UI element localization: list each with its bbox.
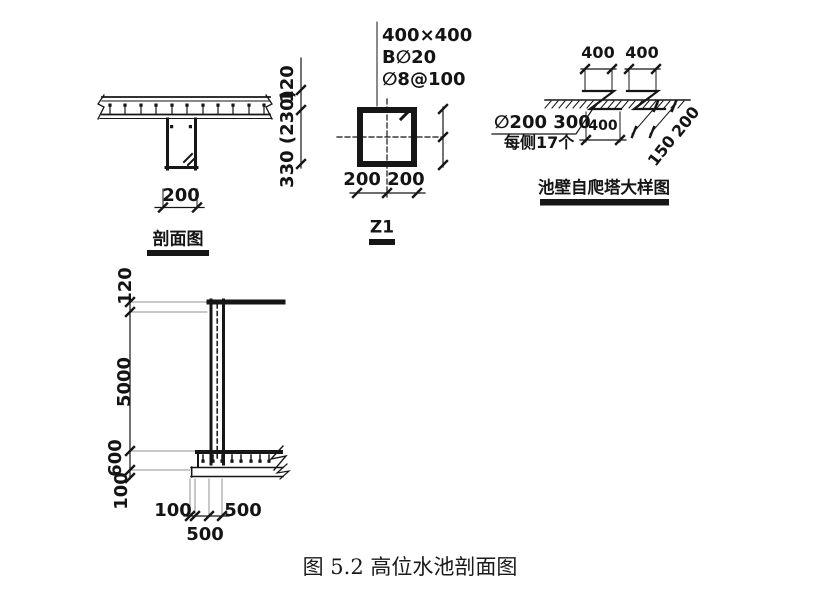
dim-label-500-right: 500 [224,502,262,520]
ladder-title-underline [540,199,669,206]
dim-label-120-wall: 120 [117,267,135,305]
wall-hatching [545,101,684,108]
section-title-underline [147,250,209,256]
dim-label-100-base: 100 [113,472,131,510]
dim-label-400-top-2: 400 [625,45,658,61]
rung-note-line2: 每侧17个 [504,135,574,151]
column-note-size: 400×400 [382,27,472,45]
ladder-detail-title: 池壁自爬塔大样图 [538,180,670,197]
dim-label-400-top-1: 400 [581,45,614,61]
stem-rebar-dots [170,125,192,128]
wall-section-drawing [126,294,289,520]
figure-caption: 图 5.2 高位水池剖面图 [0,551,820,581]
column-title-z1: Z1 [370,220,394,237]
z1-title-underline [369,239,395,245]
dim-label-330-230: 330 (230) [279,90,297,188]
dim-label-5000: 5000 [116,357,134,407]
dim-label-200: 200 [162,187,200,205]
dim-label-500-bottom: 500 [186,526,224,544]
dim-label-200-200: 200 200 [343,171,424,189]
tbeam-section-drawing [98,58,305,256]
footing-rebar-dots [201,460,270,463]
dim-label-400-mid: 400 [588,119,617,133]
column-note-stirrups: ∅8@100 [382,71,466,89]
dim-label-600: 600 [107,439,125,477]
rung-note-line1: ∅200 300 [494,114,591,132]
dim-label-100-h: 100 [154,502,192,520]
section-view-title: 剖面图 [153,232,204,249]
column-note-bars: B∅20 [382,49,436,67]
figure-5-2-drawing-sheet: 200 120 330 (230) 剖面图 400×400 B∅20 ∅8@10… [0,0,820,592]
slab-rebar-dots [108,104,265,107]
